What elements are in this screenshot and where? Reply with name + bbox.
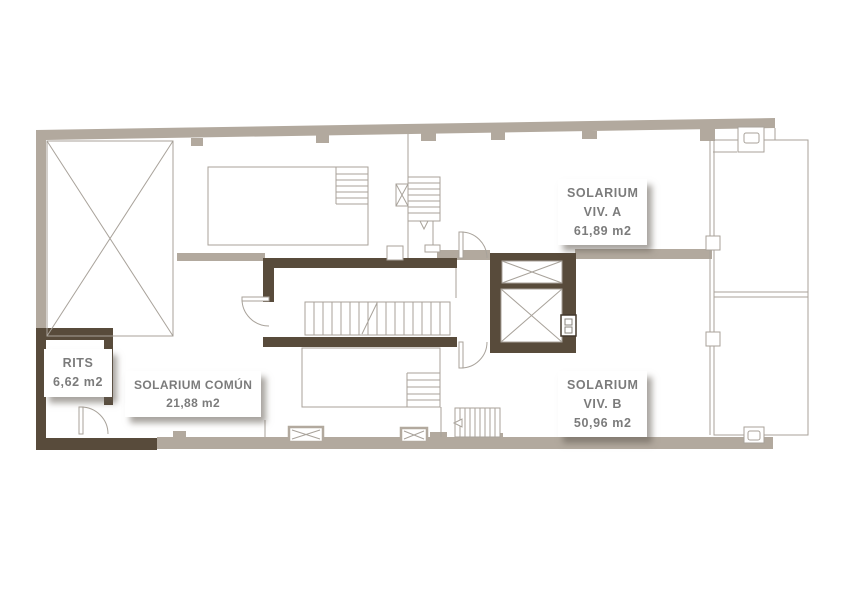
floor-plan-page: SOLARIUM VIV. A 61,89 m2 SOLARIUM VIV. B… <box>0 0 850 614</box>
void-cross-area <box>47 141 173 336</box>
room-name: SOLARIUM <box>567 376 638 395</box>
vent-grille-right <box>401 428 427 442</box>
pool-upper <box>208 167 368 245</box>
main-staircase <box>305 268 456 335</box>
room-area: 61,89 m2 <box>567 222 638 241</box>
room-label-solarium-viv-b: SOLARIUM VIV. B 50,96 m2 <box>558 371 647 437</box>
door-stair-hall <box>242 297 269 326</box>
room-name: RITS <box>53 354 103 373</box>
door-rits <box>79 407 108 434</box>
pool-lower <box>302 348 441 437</box>
room-name: SOLARIUM COMÚN <box>134 376 252 394</box>
room-area: 21,88 m2 <box>134 394 252 412</box>
room-label-solarium-viv-a: SOLARIUM VIV. A 61,89 m2 <box>558 179 647 245</box>
door-solarium-b <box>459 342 487 368</box>
room-unit: VIV. A <box>567 203 638 222</box>
floor-plan-drawing <box>0 0 850 614</box>
elevator-shaft <box>501 261 562 342</box>
bottom-access-stair <box>454 408 500 437</box>
room-unit: VIV. B <box>567 395 638 414</box>
top-ladder-stair <box>396 134 440 258</box>
right-terraces <box>706 127 808 443</box>
room-area: 6,62 m2 <box>53 373 103 392</box>
room-area: 50,96 m2 <box>567 414 638 433</box>
room-label-solarium-comun: SOLARIUM COMÚN 21,88 m2 <box>125 371 261 417</box>
elevator-control-box <box>561 315 576 336</box>
room-label-rits: RITS 6,62 m2 <box>44 349 112 397</box>
vent-grille-left <box>289 427 323 442</box>
room-name: SOLARIUM <box>567 184 638 203</box>
